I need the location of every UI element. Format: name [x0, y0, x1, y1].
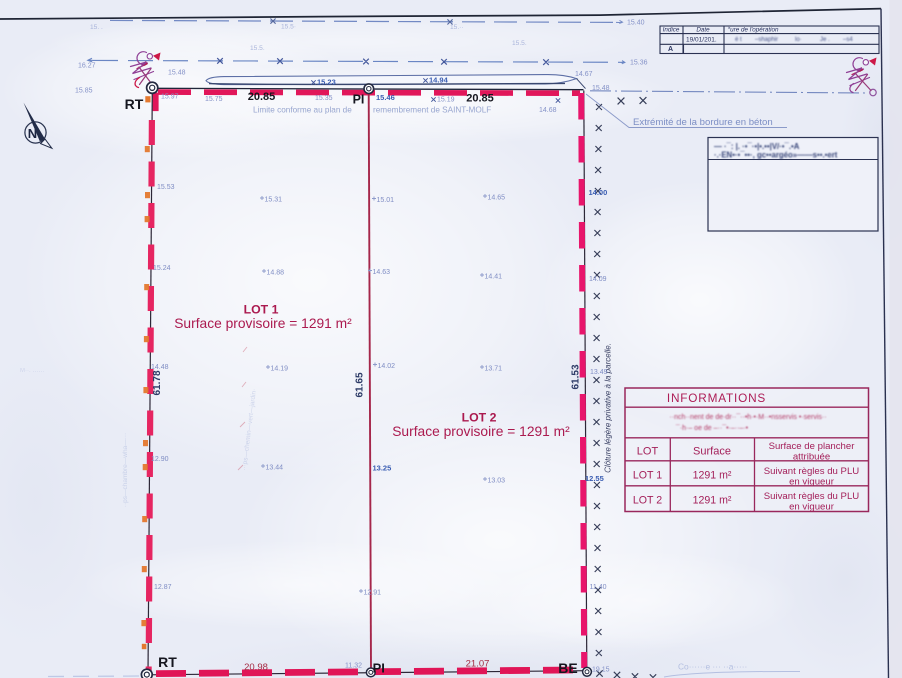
svg-text:16.27: 16.27	[78, 63, 96, 70]
svg-text:61.78: 61.78	[152, 370, 163, 395]
svg-text:61.65: 61.65	[355, 372, 366, 397]
svg-text:15.24: 15.24	[153, 265, 171, 272]
svg-text:en vigueur: en vigueur	[789, 477, 835, 488]
svg-text:Suivant règles du PLU: Suivant règles du PLU	[764, 491, 860, 502]
svg-text:M··. ……: M··. ……	[20, 368, 44, 374]
svg-text:13.03: 13.03	[488, 478, 506, 485]
svg-text:–shaphir: –shaphir	[755, 37, 778, 43]
svg-text:14.48: 14.48	[151, 364, 169, 371]
svg-text:14.41: 14.41	[485, 274, 503, 281]
svg-text:PI: PI	[373, 661, 385, 676]
svg-text:15.5.: 15.5.	[512, 40, 527, 47]
svg-text:14.65: 14.65	[488, 195, 506, 202]
svg-text:15.48: 15.48	[168, 70, 186, 77]
svg-text:RT: RT	[158, 654, 177, 670]
svg-text:15. .: 15. .	[90, 24, 103, 31]
svg-text:remembrement de SAINT-MOLF: remembrement de SAINT-MOLF	[373, 106, 491, 115]
svg-text:13.71: 13.71	[485, 366, 503, 373]
svg-text:19/01/201.: 19/01/201.	[686, 36, 717, 43]
svg-text:BE: BE	[558, 660, 577, 676]
svg-text:14.68: 14.68	[539, 107, 557, 114]
svg-text:15.85: 15.85	[75, 88, 93, 95]
svg-text:1291 m²: 1291 m²	[693, 470, 732, 482]
svg-text:20.85: 20.85	[248, 91, 276, 103]
svg-text:15.23: 15.23	[317, 78, 336, 87]
svg-text:RT: RT	[125, 96, 144, 112]
svg-text:LOT 1: LOT 1	[633, 470, 662, 482]
svg-text:Je .: Je .	[820, 37, 830, 43]
svg-text:15.31: 15.31	[265, 197, 283, 204]
svg-text:11.32: 11.32	[345, 663, 362, 670]
svg-text:14.19: 14.19	[271, 366, 289, 373]
svg-text:˟ure de l'opération: ˟ure de l'opération	[728, 26, 779, 34]
svg-text:LOT 2: LOT 2	[462, 411, 497, 425]
svg-text:15.75: 15.75	[205, 96, 223, 103]
svg-text:14.88: 14.88	[267, 270, 285, 277]
svg-text:A: A	[668, 46, 673, 53]
svg-text:12.90: 12.90	[151, 456, 169, 463]
svg-text:lo·: lo·	[795, 37, 802, 43]
svg-text:20.98: 20.98	[244, 662, 268, 673]
svg-text:12.55: 12.55	[585, 474, 604, 483]
svg-text:··nch··nent de de·dr··¯··•h·•·: ··nch··nent de de·dr··¯··•h·•·M··•nsserv…	[669, 413, 826, 421]
svg-text:13.25: 13.25	[373, 464, 392, 473]
svg-text:attribuée: attribuée	[793, 452, 830, 463]
svg-text:13.49: 13.49	[590, 369, 608, 376]
svg-text:··ps—chambre—wha—···: ··ps—chambre—wha—···	[122, 433, 129, 507]
svg-text:LOT: LOT	[637, 446, 659, 458]
svg-text:12.87: 12.87	[154, 584, 172, 591]
svg-text:·.·EN•·•¯••·, gc••argéo»——s••.: ·.·EN•·•¯••·, gc••argéo»——s••.•ert	[714, 151, 838, 160]
svg-text:15.36: 15.36	[630, 60, 648, 67]
svg-text:en vigueur: en vigueur	[789, 502, 835, 513]
svg-text:15.··: 15.··	[450, 24, 464, 31]
svg-text:15.5·: 15.5·	[281, 24, 296, 31]
svg-text:15.46: 15.46	[376, 93, 395, 102]
svg-text:15.97: 15.97	[161, 94, 179, 101]
svg-text:61.53: 61.53	[571, 364, 582, 389]
svg-text:Co······e ··· ··a·····: Co······e ··· ··a·····	[678, 662, 747, 672]
svg-text:Date: Date	[696, 27, 710, 34]
svg-text:1291 m²: 1291 m²	[693, 495, 732, 507]
svg-text:Extrémité de la bordure en bét: Extrémité de la bordure en béton	[633, 117, 773, 128]
svg-text:14.02: 14.02	[378, 363, 396, 370]
svg-text:Surface: Surface	[693, 446, 731, 458]
svg-text:15.5.: 15.5.	[250, 45, 265, 52]
svg-text:LOT 2: LOT 2	[633, 495, 662, 507]
svg-text:PI: PI	[353, 93, 365, 107]
svg-text:15.35: 15.35	[315, 95, 333, 102]
svg-text:–s4: –s4	[843, 37, 853, 43]
svg-text:¯·h·– oe de –··¯•·–··–·•: ¯·h·– oe de –··¯•·–··–·•	[675, 424, 749, 432]
svg-text:é t: é t	[735, 37, 742, 43]
svg-text:12.91: 12.91	[364, 590, 382, 597]
svg-text:14.00: 14.00	[589, 188, 608, 197]
svg-text:Suivant règles du PLU: Suivant règles du PLU	[764, 466, 860, 477]
svg-text:Limite conforme au plan de: Limite conforme au plan de	[253, 106, 352, 115]
svg-text:Surface provisoire = 1291 m²: Surface provisoire = 1291 m²	[392, 424, 570, 439]
svg-text:Surface de plancher: Surface de plancher	[769, 441, 856, 452]
svg-text:14.94: 14.94	[429, 76, 449, 85]
svg-text:13.44: 13.44	[266, 465, 284, 472]
svg-text:15.01: 15.01	[377, 197, 395, 204]
svg-text:20.85: 20.85	[466, 93, 494, 105]
svg-text:19.15: 19.15	[592, 667, 610, 674]
svg-text:15.48: 15.48	[592, 85, 610, 92]
svg-text:14.67: 14.67	[575, 71, 593, 78]
svg-text:14.09: 14.09	[589, 276, 607, 283]
svg-text:15.53: 15.53	[157, 184, 175, 191]
svg-text:21.07: 21.07	[466, 659, 490, 670]
svg-text:Indice: Indice	[663, 27, 680, 34]
svg-text:Surface provisoire = 1291 m²: Surface provisoire = 1291 m²	[174, 316, 352, 331]
svg-text:Clôture légère privative à la: Clôture légère privative à la parcelle.	[604, 343, 613, 473]
svg-text:11.40: 11.40	[590, 584, 607, 591]
svg-text:INFORMATIONS: INFORMATIONS	[667, 391, 766, 405]
svg-text:14.63: 14.63	[373, 269, 391, 276]
svg-text:15.19: 15.19	[437, 97, 455, 104]
svg-text:15.40: 15.40	[627, 20, 645, 27]
svg-text:LOT 1: LOT 1	[244, 303, 279, 317]
